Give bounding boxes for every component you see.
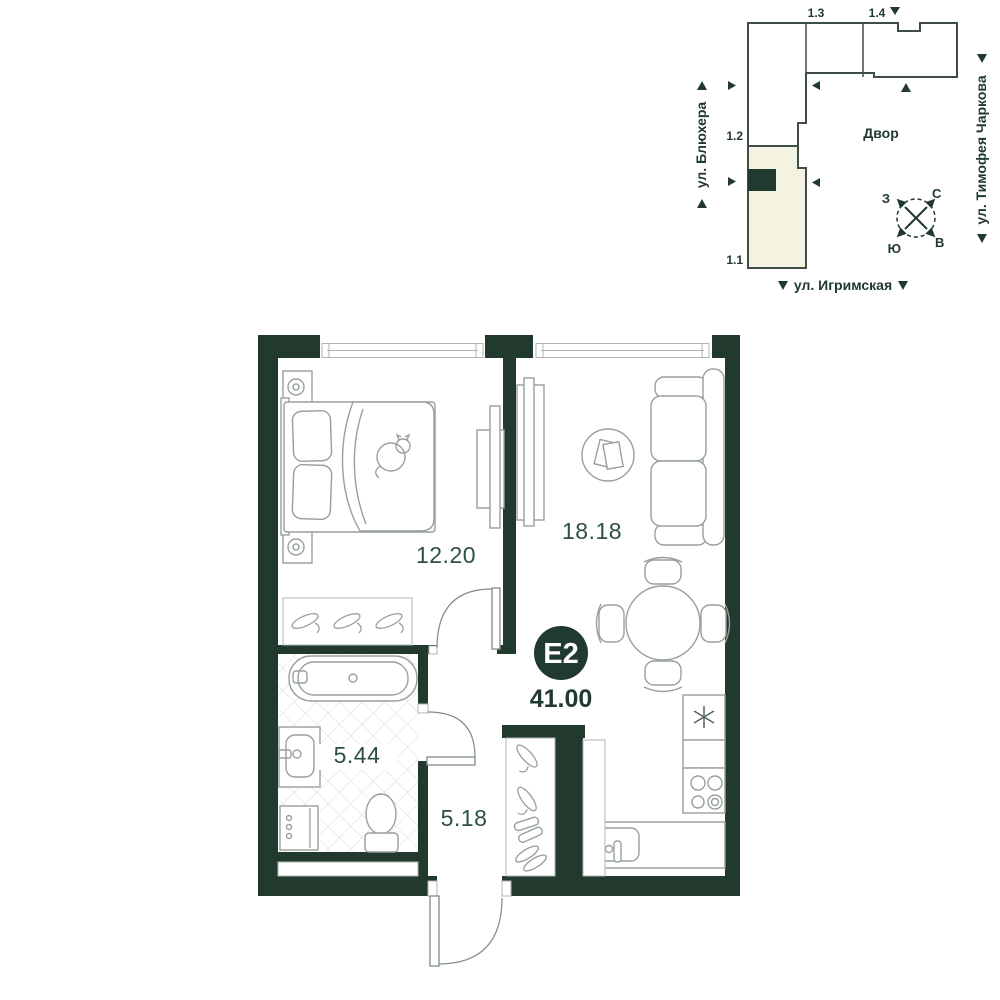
wall-segment bbox=[502, 725, 585, 738]
chair-back bbox=[644, 687, 682, 692]
magazine bbox=[603, 442, 623, 469]
compass-label-east: В bbox=[935, 235, 944, 250]
bathroom-area-label: 5.44 bbox=[334, 742, 381, 768]
wall-segment bbox=[503, 358, 516, 650]
door-jamb bbox=[502, 881, 511, 896]
stove bbox=[683, 768, 725, 813]
tall-cabinet bbox=[583, 740, 605, 876]
bedroom-window bbox=[322, 344, 483, 358]
door-swing-arc bbox=[438, 898, 502, 964]
section-label-1-4: 1.4 bbox=[869, 6, 886, 20]
compass-label-north: С bbox=[932, 186, 942, 201]
wall-segment bbox=[418, 654, 428, 712]
chair bbox=[645, 560, 681, 584]
bedroom: 12.20 bbox=[281, 371, 504, 654]
compass: З С Ю В bbox=[882, 186, 945, 256]
door-panel bbox=[427, 757, 475, 765]
blanket bbox=[343, 402, 434, 531]
door-jamb bbox=[428, 881, 437, 896]
unit-type-label: Е2 bbox=[543, 638, 578, 670]
chair bbox=[701, 605, 726, 642]
dining-table bbox=[626, 586, 700, 660]
faucet-icon bbox=[614, 841, 621, 862]
hallway-area-label: 5.18 bbox=[441, 805, 488, 831]
tv-panel bbox=[490, 406, 500, 528]
compass-arrow-west bbox=[894, 196, 907, 209]
wall-segment bbox=[555, 738, 583, 876]
wall-segment bbox=[278, 645, 437, 654]
wall-segment bbox=[485, 335, 533, 358]
door-jamb bbox=[429, 646, 437, 654]
section-label-1-3: 1.3 bbox=[808, 6, 825, 20]
chair bbox=[645, 661, 681, 685]
arrow-down-icon bbox=[890, 7, 900, 15]
arrow-up-icon bbox=[697, 81, 707, 90]
unit-badge: Е2 41.00 bbox=[530, 626, 593, 713]
door-panel bbox=[430, 896, 439, 966]
street-label-right: ул. Тимофея Чаркова bbox=[973, 54, 989, 243]
chair bbox=[599, 605, 624, 642]
section-label-1-2: 1.2 bbox=[726, 129, 743, 143]
tv-panel bbox=[524, 378, 534, 526]
street-label-left: ул. Блюхера bbox=[693, 81, 709, 208]
pillow bbox=[292, 410, 332, 461]
kitchen-counter-segment bbox=[683, 740, 725, 768]
arrow-up-icon bbox=[697, 199, 707, 208]
site-plan: 1.3 1.4 1.2 1.1 Двор ул. Блюхера ул. Тим… bbox=[693, 6, 989, 293]
compass-arrow-south bbox=[894, 227, 907, 240]
toilet-bowl bbox=[366, 794, 396, 834]
toilet bbox=[365, 794, 398, 852]
sofa bbox=[651, 369, 724, 545]
door-swing-arc bbox=[428, 712, 475, 757]
bathroom-door bbox=[418, 704, 475, 765]
courtyard-label: Двор bbox=[863, 125, 899, 141]
section-label-1-1: 1.1 bbox=[726, 253, 743, 267]
bathtub bbox=[289, 656, 417, 701]
hallway: 5.18 bbox=[428, 738, 555, 966]
arrow-down-icon bbox=[778, 281, 788, 290]
bedroom-door bbox=[429, 588, 500, 654]
floorplan-canvas: 1.3 1.4 1.2 1.1 Двор ул. Блюхера ул. Тим… bbox=[0, 0, 1000, 1000]
door-panel bbox=[492, 588, 500, 649]
arrow-down-icon bbox=[898, 281, 908, 290]
washer-body bbox=[280, 806, 318, 850]
bedroom-area-label: 12.20 bbox=[416, 542, 476, 568]
floor-plan: 12.20 bbox=[258, 335, 740, 966]
dining-set bbox=[597, 558, 730, 692]
arrow-right-icon bbox=[728, 177, 736, 186]
apartment-location-marker bbox=[748, 169, 776, 191]
arrow-up-icon bbox=[901, 83, 911, 92]
washing-machine bbox=[280, 806, 318, 850]
wall-niche bbox=[278, 862, 418, 876]
total-area-label: 41.00 bbox=[530, 685, 593, 713]
arrow-left-icon bbox=[812, 178, 820, 187]
coffee-table bbox=[582, 429, 634, 481]
sofa-cushion bbox=[651, 396, 706, 461]
arrow-down-icon bbox=[977, 234, 987, 243]
door-jamb bbox=[418, 704, 428, 713]
living-window bbox=[536, 344, 709, 358]
svg-text:ул. Игримская: ул. Игримская bbox=[794, 277, 892, 293]
toilet-tank bbox=[365, 833, 398, 852]
street-label-bottom: ул. Игримская bbox=[778, 277, 908, 293]
vanity-sink bbox=[279, 727, 320, 787]
pillow bbox=[292, 464, 332, 519]
hall-closet bbox=[506, 738, 555, 876]
wall-segment bbox=[258, 335, 278, 896]
compass-label-south: Ю bbox=[888, 241, 901, 256]
building-section-highlight bbox=[748, 146, 806, 268]
svg-text:ул. Тимофея Чаркова: ул. Тимофея Чаркова bbox=[973, 75, 989, 225]
door-swing-arc bbox=[437, 589, 492, 648]
wall-segment bbox=[418, 761, 428, 876]
arrow-down-icon bbox=[977, 54, 987, 63]
wall-segment bbox=[278, 852, 418, 862]
entrance-door bbox=[428, 881, 511, 966]
sofa-cushion bbox=[651, 461, 706, 526]
sofa-armrest bbox=[655, 377, 707, 398]
floorplan-page: 1.3 1.4 1.2 1.1 Двор ул. Блюхера ул. Тим… bbox=[0, 0, 1000, 1000]
wall-segment bbox=[258, 876, 437, 896]
kitchen bbox=[583, 695, 725, 876]
bedroom-closet bbox=[283, 598, 412, 645]
living-area-label: 18.18 bbox=[562, 518, 622, 544]
arrow-left-icon bbox=[812, 81, 820, 90]
stove-top bbox=[683, 768, 725, 813]
svg-text:ул. Блюхера: ул. Блюхера bbox=[693, 102, 709, 189]
sofa-armrest bbox=[655, 524, 707, 545]
arrow-right-icon bbox=[728, 81, 736, 90]
wall-segment bbox=[502, 876, 740, 896]
wall-segment bbox=[725, 335, 740, 896]
compass-label-west: З bbox=[882, 191, 890, 206]
